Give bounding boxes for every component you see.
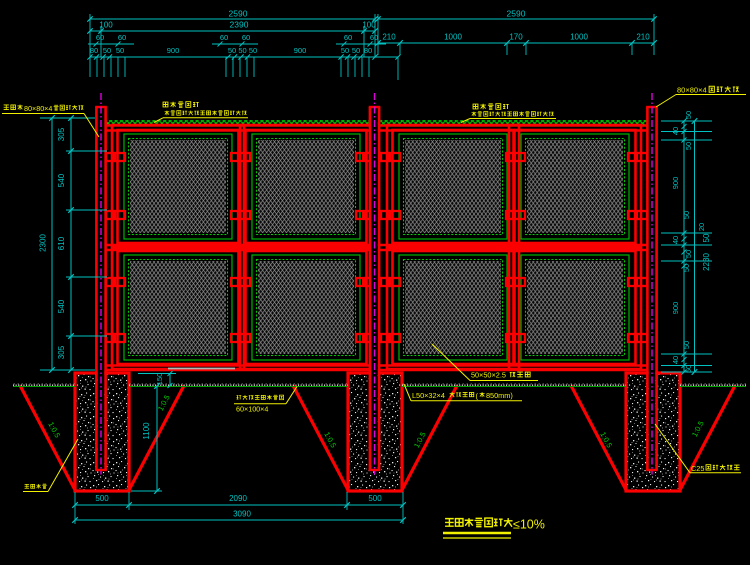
svg-text:1100: 1100 — [142, 422, 151, 440]
svg-text:80: 80 — [364, 46, 372, 55]
svg-text:540: 540 — [57, 173, 66, 187]
svg-text:610: 610 — [57, 236, 66, 250]
svg-text:60: 60 — [370, 33, 378, 42]
svg-text:60×100×4: 60×100×4 — [236, 405, 268, 414]
svg-text:3090: 3090 — [233, 510, 251, 519]
svg-text:50: 50 — [684, 142, 693, 150]
svg-text:60: 60 — [344, 33, 352, 42]
svg-text:210: 210 — [382, 33, 396, 42]
svg-text:60: 60 — [118, 33, 126, 42]
svg-text:2230: 2230 — [702, 253, 711, 271]
svg-text:50: 50 — [684, 111, 693, 119]
svg-text:2590: 2590 — [507, 9, 526, 19]
svg-text:50: 50 — [116, 46, 124, 55]
svg-text:900: 900 — [167, 46, 180, 55]
svg-text:80: 80 — [90, 46, 98, 55]
svg-text:50: 50 — [352, 46, 360, 55]
svg-text:900: 900 — [671, 177, 680, 190]
svg-text:210: 210 — [636, 33, 650, 42]
svg-text:50: 50 — [103, 46, 111, 55]
svg-text:80×80×4: 80×80×4 — [24, 104, 52, 113]
svg-text:L50×32×4: L50×32×4 — [412, 391, 445, 400]
svg-text:50: 50 — [249, 46, 257, 55]
svg-text:50: 50 — [684, 250, 693, 258]
svg-text:60: 60 — [242, 33, 250, 42]
svg-text:50: 50 — [682, 264, 691, 272]
svg-text:540: 540 — [57, 299, 66, 313]
svg-text:2590: 2590 — [229, 9, 248, 19]
svg-text:40: 40 — [671, 127, 680, 135]
svg-text:C25: C25 — [691, 464, 704, 473]
svg-text:≤10%: ≤10% — [513, 518, 545, 532]
svg-text:50×50×2.5: 50×50×2.5 — [471, 371, 506, 380]
svg-text:60: 60 — [220, 33, 228, 42]
svg-text:2300: 2300 — [39, 234, 48, 252]
svg-text:80×80×4: 80×80×4 — [677, 86, 707, 95]
svg-text:40: 40 — [671, 356, 680, 364]
svg-text:40: 40 — [671, 236, 680, 244]
svg-text:60: 60 — [96, 33, 104, 42]
svg-text:900: 900 — [671, 302, 680, 315]
svg-text:170: 170 — [509, 33, 523, 42]
svg-text:2390: 2390 — [230, 20, 249, 30]
svg-text:50: 50 — [682, 341, 691, 349]
svg-text:50: 50 — [341, 46, 349, 55]
svg-text:900: 900 — [294, 46, 307, 55]
svg-text:500: 500 — [95, 494, 109, 503]
svg-text:2090: 2090 — [229, 494, 247, 503]
svg-text:850mm): 850mm) — [486, 391, 513, 400]
svg-text:305: 305 — [57, 127, 66, 141]
svg-text:1000: 1000 — [570, 33, 588, 42]
svg-text:50: 50 — [228, 46, 236, 55]
svg-text:50: 50 — [682, 211, 691, 219]
svg-text:20: 20 — [697, 223, 706, 231]
svg-text:1000: 1000 — [444, 33, 462, 42]
svg-text:50: 50 — [238, 46, 246, 55]
svg-text:50: 50 — [684, 365, 693, 373]
svg-text:305: 305 — [57, 345, 66, 359]
svg-text:500: 500 — [368, 494, 382, 503]
svg-text:50: 50 — [702, 233, 711, 242]
